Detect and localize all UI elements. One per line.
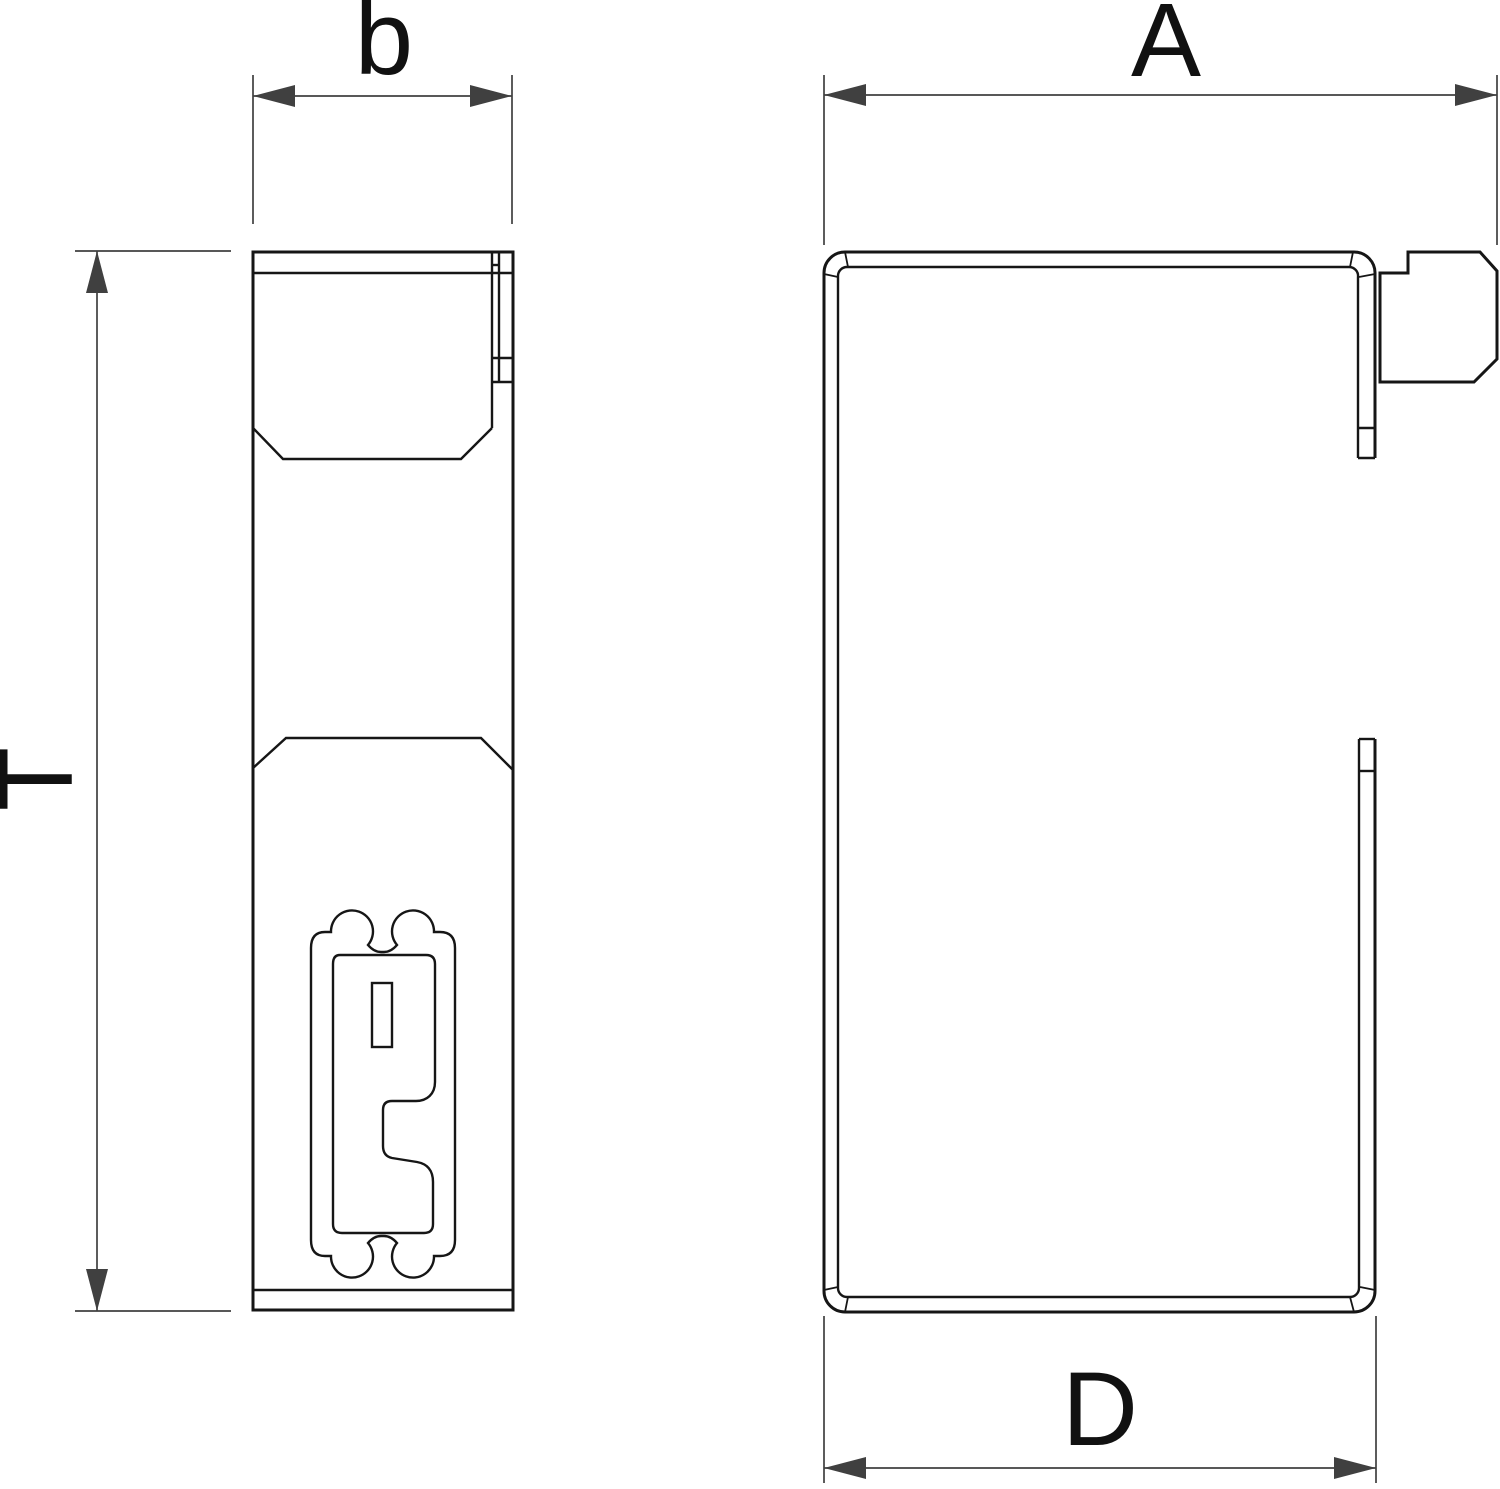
bend-mark-bottom-right bbox=[1350, 1287, 1375, 1312]
dimension-t bbox=[75, 251, 231, 1311]
arrowhead-right-icon bbox=[1455, 84, 1497, 106]
front-view-inner-contour bbox=[838, 267, 1359, 1297]
front-view-latch-block bbox=[1380, 252, 1497, 382]
dimension-label-t: T bbox=[0, 747, 89, 811]
dimension-label-b: b bbox=[355, 0, 413, 91]
side-view bbox=[253, 252, 513, 1310]
side-view-chevron-fold-line bbox=[253, 738, 513, 770]
side-view-rail-cutout-inner bbox=[333, 955, 435, 1233]
dimension-label-d: D bbox=[1062, 1357, 1138, 1462]
bend-mark-bottom-left bbox=[824, 1287, 848, 1312]
technical-drawing-canvas: b A T D bbox=[0, 0, 1500, 1489]
side-view-center-slot bbox=[372, 983, 392, 1047]
arrowhead-down-icon bbox=[86, 1269, 108, 1311]
arrowhead-left-icon bbox=[253, 85, 295, 107]
dimension-a bbox=[824, 75, 1497, 245]
side-view-tab-outline bbox=[253, 428, 492, 459]
bend-mark-top-left bbox=[824, 252, 848, 277]
arrowhead-left-icon bbox=[824, 1457, 866, 1479]
orthographic-views-drawing bbox=[0, 0, 1500, 1489]
arrowhead-left-icon bbox=[824, 84, 866, 106]
arrowhead-right-icon bbox=[470, 85, 512, 107]
arrowhead-up-icon bbox=[86, 251, 108, 293]
front-view-outer-contour bbox=[824, 252, 1375, 1312]
arrowhead-right-icon bbox=[1334, 1457, 1376, 1479]
dimension-b bbox=[253, 75, 512, 224]
bend-mark-top-right bbox=[1350, 252, 1375, 277]
front-view bbox=[824, 252, 1497, 1312]
dimension-label-a: A bbox=[1131, 0, 1201, 93]
